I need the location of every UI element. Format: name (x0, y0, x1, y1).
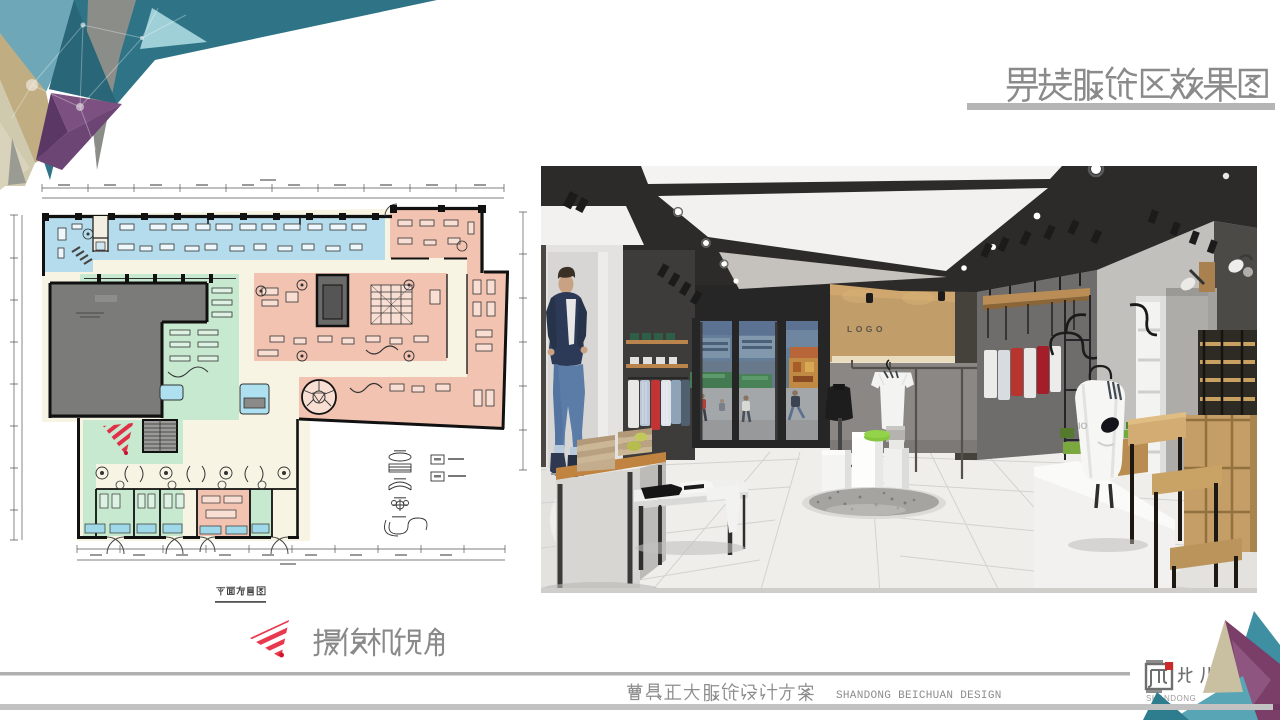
svg-text:LOGO: LOGO (847, 324, 886, 334)
svg-text:SHANDONG BEICHUAN DESIGN: SHANDONG BEICHUAN DESIGN (836, 690, 1002, 702)
svg-text:IO: IO (1078, 421, 1088, 431)
